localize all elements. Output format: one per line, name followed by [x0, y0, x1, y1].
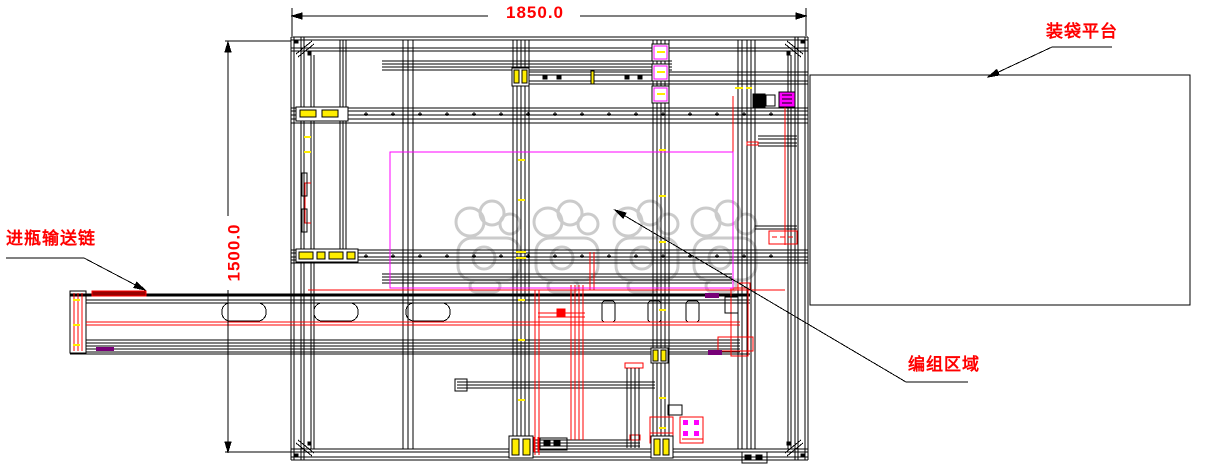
- top-width-dimension: 1850.0: [490, 4, 580, 21]
- watermark-glyphs: [456, 201, 756, 292]
- machine-frame: [291, 37, 808, 460]
- cad-linework: [0, 0, 1206, 469]
- bagging-platform-outline: [810, 75, 1190, 305]
- label-bottle-infeed-conveyor: 进瓶输送链: [6, 230, 96, 247]
- red-assemblies: [305, 96, 797, 455]
- label-grouping-area: 编组区域: [908, 356, 980, 373]
- horizontal-rails: [291, 61, 808, 446]
- magenta-parts: [683, 92, 795, 436]
- label-bagging-platform: 装袋平台: [1046, 23, 1118, 40]
- cad-drawing-canvas: 1850.0 1500.0 装袋平台 进瓶输送链 编组区域: [0, 0, 1206, 469]
- left-height-dimension: 1500.0: [226, 207, 243, 299]
